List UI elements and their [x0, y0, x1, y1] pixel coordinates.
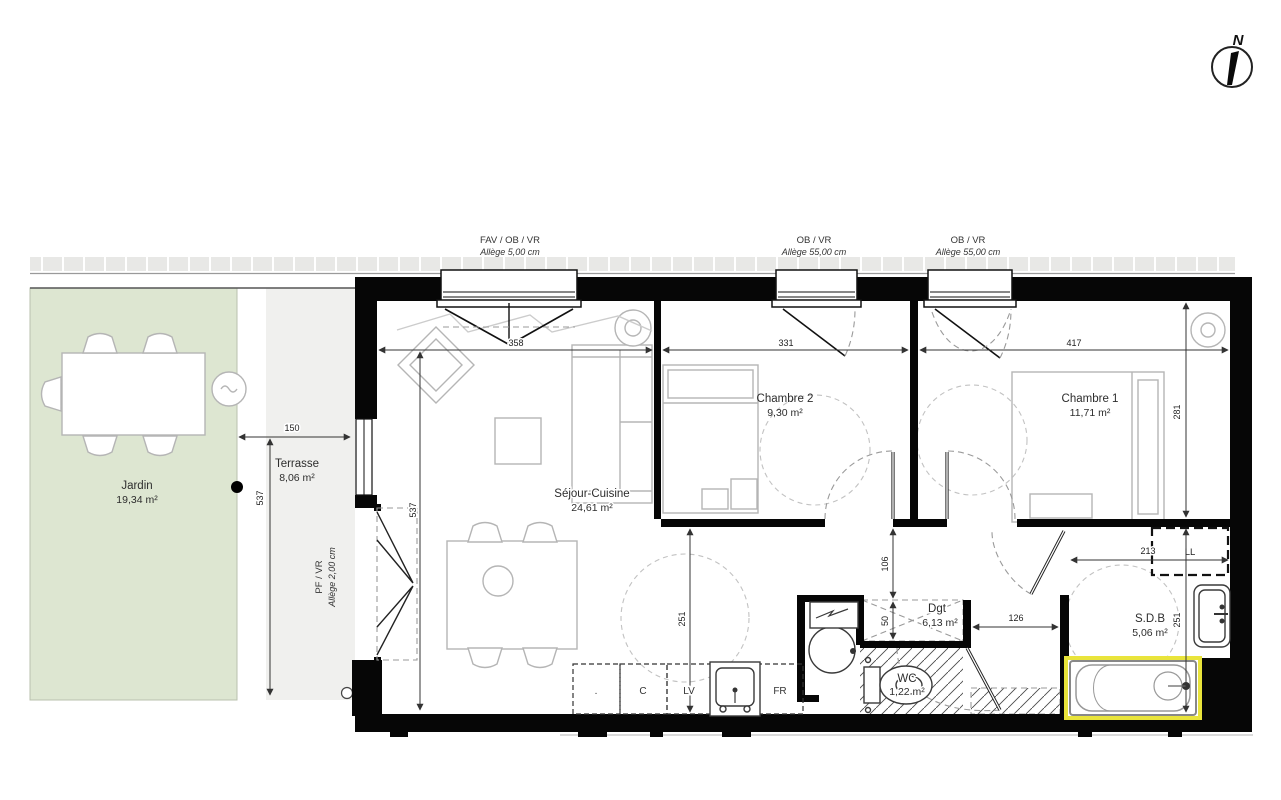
footing-mark [578, 732, 607, 737]
window-swing-arc [845, 309, 855, 356]
window-chambre2-allege: Allège 55,00 cm [781, 247, 847, 257]
window-swing-arc [932, 312, 1010, 351]
label-wc: WC [897, 673, 916, 685]
kitchen-sink-fitting [744, 706, 750, 712]
window-leaf [783, 309, 845, 356]
door-swing-arc-chambre1 [947, 451, 1015, 519]
dining-chair [523, 523, 557, 543]
wall-sejour-chambre2 [654, 301, 661, 519]
dim-hall-lower: 50 [880, 616, 890, 626]
wall-wc-top [860, 641, 971, 648]
sofa [572, 345, 652, 503]
nightstand [702, 489, 728, 509]
label-washer: LL [1185, 547, 1196, 558]
dim-chambre2-width: 331 [778, 338, 793, 348]
wall-dgt-right [963, 600, 971, 648]
label-sdb-area: 5,06 m² [1132, 627, 1168, 639]
window-chambre1-allege: Allège 55,00 cm [935, 247, 1001, 257]
window-sill [772, 300, 861, 307]
door-swing-arc-sdb [992, 532, 1031, 594]
label-chambre1-area: 11,71 m² [1070, 407, 1111, 419]
compass-north-label: N [1233, 32, 1245, 49]
kitchen-sink-fitting [720, 706, 726, 712]
terrace-french-door [377, 508, 417, 660]
footing-mark [650, 732, 663, 737]
turning-circle-chambre1 [917, 385, 1027, 495]
window-sill [924, 300, 1016, 307]
footing-mark [722, 732, 751, 737]
wall-left-corner [352, 660, 382, 716]
label-sejour: Séjour-Cuisine [554, 488, 629, 500]
dining-chair [523, 648, 557, 668]
terrace-door-allege: Allège 2,00 cm [327, 547, 337, 608]
wall-utility-bottom [797, 695, 819, 702]
wall-hall-a [661, 519, 825, 527]
dim-chambre1-depth: 281 [1172, 404, 1182, 419]
dim-sejour-width: 358 [508, 338, 523, 348]
dim-sdb-depth: 251 [1172, 612, 1182, 627]
label-terrasse: Terrasse [275, 458, 319, 470]
bed-chambre1-pillow [1138, 380, 1158, 514]
footing-mark [390, 732, 408, 737]
garden-chair [42, 377, 62, 411]
electrical-panel [810, 602, 858, 628]
window-sejour-type: FAV / OB / VR [480, 235, 540, 246]
door-leaf-core [1031, 531, 1064, 594]
dining-chair [468, 523, 502, 543]
boundary-post-dot [231, 481, 243, 493]
label-cupboard: C [639, 686, 646, 697]
wall-right [1230, 277, 1252, 732]
ceiling-fixture [1191, 313, 1225, 347]
footing-mark [1168, 732, 1182, 737]
window-chambre1-type: OB / VR [951, 235, 986, 246]
label-dgt-area: 6,13 m² [922, 617, 958, 629]
french-door-leaves [377, 512, 413, 655]
footing-mark [1078, 732, 1092, 737]
label-chambre2-area: 9,30 m² [767, 407, 803, 419]
door-swing-arc-chambre2 [825, 451, 893, 519]
duct-block [1200, 658, 1230, 716]
dim-entry-width: 126 [1008, 613, 1023, 623]
label-fridge: FR [773, 686, 786, 697]
bathtub [1070, 661, 1196, 715]
wall-hall-b [893, 519, 947, 527]
compass-needle [1227, 51, 1239, 85]
label-wc-area: 1,22 m² [889, 686, 925, 698]
bathroom-sink-basin [1199, 590, 1225, 642]
wall-utility-top [797, 595, 864, 602]
nightstand [731, 479, 757, 509]
water-heater-valve [850, 648, 856, 654]
garden-chair [143, 334, 177, 354]
coffee-table [495, 418, 541, 464]
garden-chair [83, 334, 117, 354]
window-chambre2-type: OB / VR [797, 235, 832, 246]
window-sejour [437, 270, 581, 346]
water-heater [809, 627, 855, 673]
window-terrasse-small [356, 419, 372, 495]
door-opening-dash [377, 508, 417, 660]
dim-hall-upper: 106 [880, 556, 890, 571]
window-sejour-allege: Allège 5,00 cm [479, 247, 540, 257]
dining-table [447, 541, 577, 649]
dim-sejour-lower: 251 [677, 611, 687, 626]
label-sejour-area: 24,61 m² [571, 502, 613, 514]
window-chambre1 [924, 270, 1016, 358]
window-swing-arc [1000, 309, 1011, 358]
wall-left-upper [355, 277, 377, 419]
floor-plan-page: 358 331 417 150 537 537 281 251 106 50 1… [0, 0, 1281, 800]
label-jardin-area: 19,34 m² [116, 494, 158, 506]
toilet-fitting [866, 708, 871, 713]
sink-tap-dot [1220, 619, 1225, 624]
toilet-tank [864, 667, 880, 703]
wall-hall-c [1017, 519, 1230, 527]
north-compass: N [1212, 32, 1252, 87]
garden-chair [143, 436, 177, 456]
label-kitchen-empty: . [595, 686, 598, 697]
bed-bench [1030, 494, 1092, 518]
wall-utility-left [797, 595, 805, 702]
wall-chambre2-chambre1 [910, 301, 918, 519]
dim-sdb-width: 213 [1140, 546, 1155, 556]
dining-chair [468, 648, 502, 668]
label-dgt: Dgt [928, 603, 947, 615]
label-sdb: S.D.B [1135, 613, 1165, 625]
terrace-door-type: PF / VR [314, 560, 325, 593]
dim-chambre1-width: 417 [1066, 338, 1081, 348]
bed-chambre2-pillow [668, 370, 753, 398]
floor-plan-drawing: 358 331 417 150 537 537 281 251 106 50 1… [0, 0, 1281, 800]
label-chambre2: Chambre 2 [757, 393, 814, 405]
toilet-fitting [866, 658, 871, 663]
downspout-circle [342, 688, 353, 699]
dim-sejour-depth: 537 [408, 502, 418, 517]
wall-left-mid [355, 495, 377, 508]
label-terrasse-area: 8,06 m² [279, 472, 315, 484]
terrace-area [266, 288, 355, 700]
dim-terrasse-width: 150 [284, 423, 299, 433]
garden-table [62, 353, 205, 435]
label-dishwasher: LV [683, 686, 695, 697]
label-chambre1: Chambre 1 [1062, 393, 1119, 405]
dim-terrasse-depth: 537 [255, 490, 265, 505]
label-jardin: Jardin [121, 480, 152, 492]
garden-chair [83, 436, 117, 456]
sink-tap-dot [1220, 605, 1225, 610]
sidewalk-tile-strip [30, 257, 1235, 274]
